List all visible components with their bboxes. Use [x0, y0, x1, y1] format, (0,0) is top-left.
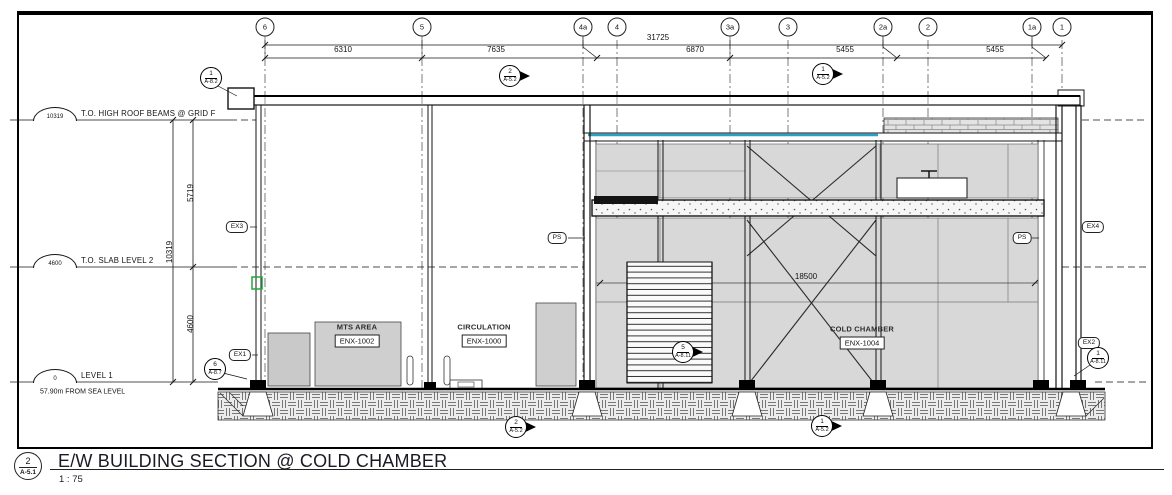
section-marker-circle: 1A-8.2: [200, 67, 222, 89]
title-divider: [50, 469, 1164, 470]
room-name-0: MTS AREA: [337, 323, 378, 331]
section-marker-number: 6: [209, 361, 221, 370]
level-elevation: 10319: [47, 114, 64, 120]
level-elevation: 4600: [48, 261, 61, 267]
grid-bubble-2: 2: [919, 18, 938, 37]
dimension-segment-4: 5455: [986, 46, 1004, 54]
dimension-segment-3: 5455: [836, 46, 854, 54]
section-marker-number: 1: [817, 66, 829, 75]
grid-bubble-1: 1: [1053, 18, 1072, 37]
section-marker-circle: 2A-5.2: [505, 416, 527, 438]
section-marker-number: 1: [816, 418, 828, 427]
section-marker-sheet: A-5.2: [503, 77, 516, 84]
grid-bubble-1a: 1a: [1023, 18, 1042, 37]
section-marker-sheet: A-5.2: [509, 428, 522, 435]
level-sublabel-2: 57.90m FROM SEA LEVEL: [40, 389, 125, 396]
section-marker-number: 2: [510, 419, 522, 428]
section-marker-circle: 1A-8.11: [1087, 347, 1109, 369]
detail-number: 2: [19, 456, 36, 468]
section-marker-number: 1: [1092, 350, 1104, 359]
section-marker-sheet: A-8.2: [204, 79, 217, 86]
level-elevation: 0: [53, 376, 56, 382]
section-marker-circle: 1A-5.2: [812, 63, 834, 85]
detail-reference-bubble: 2 A-5.1: [14, 452, 42, 480]
grid-bubble-4a: 4a: [574, 18, 593, 37]
section-marker-number: 1: [205, 70, 217, 79]
room-name-2: COLD CHAMBER: [830, 325, 894, 333]
reference-tag-EX4-4: EX4: [1082, 221, 1104, 233]
level-label-0: T.O. HIGH ROOF BEAMS @ GRID F: [81, 110, 216, 118]
reference-tag-PS-2: PS: [548, 232, 567, 244]
room-tag-0: ENX-1002: [335, 335, 380, 348]
section-marker-sheet: A-8.11: [675, 353, 691, 360]
room-name-1: CIRCULATION: [457, 323, 510, 331]
section-marker-sheet: A-5.2: [816, 75, 829, 82]
section-marker-circle: 2A-5.2: [499, 65, 521, 87]
reference-tag-PS-3: PS: [1013, 232, 1032, 244]
grid-bubble-3a: 3a: [721, 18, 740, 37]
section-marker-circle: 5A-8.11: [672, 341, 694, 363]
building-section-sheet: 654a43a32a21a131725631076356870545554555…: [0, 0, 1172, 495]
dimension-vertical-0: 5719: [187, 184, 195, 202]
grid-bubble-5: 5: [413, 18, 432, 37]
level-label-1: T.O. SLAB LEVEL 2: [81, 257, 153, 265]
grid-bubble-4: 4: [608, 18, 627, 37]
dimension-vertical-1: 10319: [166, 241, 174, 263]
room-tag-1: ENX-1000: [462, 335, 507, 348]
section-marker-sheet: A-8.11: [1090, 359, 1106, 366]
section-marker-number: 5: [677, 344, 689, 353]
level-label-2: LEVEL 1: [81, 372, 113, 380]
reference-tag-EX1-1: EX1: [229, 349, 251, 361]
drawing-scale: 1 : 75: [59, 474, 83, 485]
dimension-overall-width: 31725: [647, 34, 669, 42]
sheet-reference: A-5.1: [20, 468, 36, 477]
dimension-segment-1: 7635: [487, 46, 505, 54]
section-marker-number: 2: [504, 68, 516, 77]
grid-bubble-2a: 2a: [874, 18, 893, 37]
reference-tag-EX3-0: EX3: [226, 221, 248, 233]
grid-bubble-6: 6: [256, 18, 275, 37]
section-marker-sheet: A-5.2: [815, 427, 828, 434]
section-drawing: [0, 0, 1172, 495]
dimension-segment-0: 6310: [334, 46, 352, 54]
section-marker-circle: 6A-8.7: [204, 358, 226, 380]
dimension-interior-width: 18500: [795, 273, 817, 281]
roller-door: [627, 262, 712, 383]
room-tag-2: ENX-1004: [840, 337, 885, 350]
grid-bubble-3: 3: [779, 18, 798, 37]
dimension-segment-2: 6870: [686, 46, 704, 54]
dimension-vertical-2: 4600: [187, 315, 195, 333]
section-marker-circle: 1A-5.2: [811, 415, 833, 437]
section-marker-sheet: A-8.7: [208, 370, 221, 377]
